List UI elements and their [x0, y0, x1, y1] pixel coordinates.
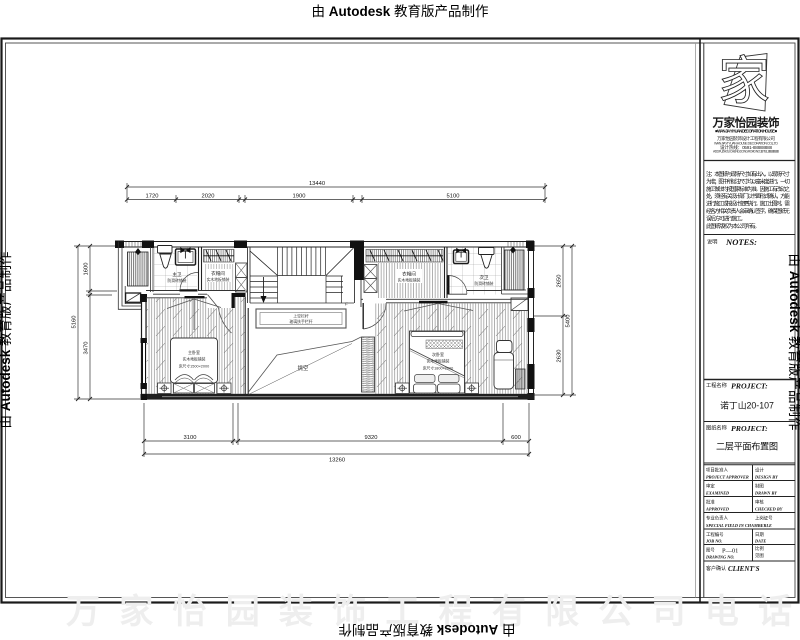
svg-text:13260: 13260 [329, 458, 345, 464]
svg-text:5100: 5100 [447, 194, 460, 200]
svg-text:9320: 9320 [365, 435, 378, 441]
svg-text:项目批准人: 项目批准人 [706, 467, 729, 474]
svg-text:5160: 5160 [72, 316, 78, 329]
svg-text:床尺寸1500×2000: 床尺寸1500×2000 [179, 364, 210, 369]
svg-text:床尺寸1800×2000: 床尺寸1800×2000 [423, 366, 454, 371]
svg-text:PROJECT APPROVER: PROJECT APPROVER [706, 475, 749, 480]
svg-text:上空栏杆: 上空栏杆 [293, 314, 309, 319]
svg-text:批准: 批准 [706, 499, 715, 506]
svg-text:注：本图纸与现场尺寸如有出入，以现场尺寸: 注：本图纸与现场尺寸如有出入，以现场尺寸 [706, 170, 790, 178]
svg-text:实木地板铺装: 实木地板铺装 [183, 357, 206, 362]
svg-text:衣帽间: 衣帽间 [211, 270, 225, 277]
svg-text:防滑砖铺装: 防滑砖铺装 [475, 281, 494, 286]
svg-text:DESIGN BY: DESIGN BY [754, 475, 778, 480]
svg-text:5400: 5400 [566, 315, 572, 328]
svg-text:3100: 3100 [184, 435, 197, 441]
svg-text:说明: 说明 [707, 238, 717, 246]
svg-text:经各方相关负责人会审确认签字，确保图纸无: 经各方相关负责人会审确认签字，确保图纸无 [706, 207, 790, 215]
svg-text:由 Autodesk 教育版产品制作: 由 Autodesk 教育版产品制作 [787, 253, 800, 430]
svg-text:F: F [345, 302, 348, 307]
svg-text:2630: 2630 [557, 350, 563, 363]
svg-text:CHECKED BY: CHECKED BY [755, 507, 783, 512]
svg-text:实木地板铺装: 实木地板铺装 [398, 278, 421, 283]
svg-text:次卧室: 次卧室 [432, 351, 444, 357]
svg-text:比例: 比例 [755, 545, 764, 552]
svg-text:设计: 设计 [755, 467, 764, 474]
svg-text:专业负责人: 专业负责人 [706, 515, 729, 522]
svg-text:DRAWING NO.: DRAWING NO. [705, 555, 735, 560]
svg-text:600: 600 [511, 435, 521, 441]
svg-text:诺丁山20-107: 诺丁山20-107 [720, 401, 774, 411]
svg-text:实木地板铺装: 实木地板铺装 [427, 359, 450, 364]
svg-text:NOTES:: NOTES: [725, 237, 757, 247]
svg-text:上岗证号: 上岗证号 [755, 515, 773, 522]
svg-text:■ WAN JIA YI YUAN DECORATION H: ■ WAN JIA YI YUAN DECORATION HOUSE ■ [715, 129, 777, 134]
svg-text:CLIENT'S: CLIENT'S [728, 565, 760, 573]
svg-text:二层平面布置图: 二层平面布置图 [716, 441, 778, 452]
svg-text:主卧室: 主卧室 [188, 349, 200, 355]
svg-text:为准；图中所标注尺寸均以毫米度进行，一切: 为准；图中所标注尺寸均以毫米度进行，一切 [706, 177, 790, 185]
svg-text:13440: 13440 [309, 181, 325, 187]
svg-text:由 Autodesk 教育版产品制作: 由 Autodesk 教育版产品制作 [338, 622, 515, 637]
svg-text:客户确认: 客户确认 [706, 565, 726, 572]
svg-text:制图: 制图 [755, 483, 764, 490]
svg-text:施工做法均按国家标准为准。因施工有改动之: 施工做法均按国家标准为准。因施工有改动之 [706, 185, 790, 193]
svg-text:2650: 2650 [557, 275, 563, 288]
svg-text:PROJECT:: PROJECT: [731, 382, 768, 391]
svg-text:主卫: 主卫 [172, 271, 182, 277]
svg-text:审定: 审定 [706, 483, 715, 490]
svg-text:玻璃扶手栏杆: 玻璃扶手栏杆 [289, 319, 312, 324]
svg-text:误后方可进行施工。: 误后方可进行施工。 [706, 214, 746, 222]
svg-text:次卫: 次卫 [479, 274, 489, 281]
svg-text:1600: 1600 [84, 263, 90, 276]
svg-text:由 Autodesk 教育版产品制作: 由 Autodesk 教育版产品制作 [311, 4, 488, 19]
svg-text:1900: 1900 [293, 194, 306, 200]
svg-text:P—01: P—01 [722, 548, 738, 555]
svg-text:进行施工或按设计变更执行。施工出图时，需: 进行施工或按设计变更执行。施工出图时，需 [706, 200, 790, 208]
svg-text:衣帽间: 衣帽间 [402, 271, 416, 278]
svg-text:处，须经有关设计部门以书面形式确认，方能: 处，须经有关设计部门以书面形式确认，方能 [706, 192, 790, 200]
svg-text:图纸名称: 图纸名称 [706, 424, 727, 432]
svg-text:万家怡园装饰: 万家怡园装饰 [712, 116, 781, 130]
svg-text:PROJECT:: PROJECT: [731, 424, 768, 433]
svg-text:家: 家 [718, 54, 770, 111]
svg-text:审核: 审核 [755, 499, 764, 506]
svg-text:此图纸版权为本公司所有。: 此图纸版权为本公司所有。 [706, 222, 760, 230]
svg-text:JOB NO.: JOB NO. [705, 539, 722, 544]
svg-text:SPECIAL FIELD IN CHAMBERLE: SPECIAL FIELD IN CHAMBERLE [706, 523, 772, 528]
svg-text:2020: 2020 [202, 194, 215, 200]
svg-text:DRAWN BY: DRAWN BY [754, 491, 777, 496]
svg-text:EXAMINED: EXAMINED [705, 491, 729, 496]
svg-text:3470: 3470 [84, 342, 90, 355]
svg-text:工程名称: 工程名称 [706, 381, 727, 389]
svg-text:挑空: 挑空 [298, 364, 309, 372]
svg-text:由 Autodesk 教育版产品制作: 由 Autodesk 教育版产品制作 [0, 251, 13, 428]
svg-text:工程编号: 工程编号 [706, 531, 724, 538]
svg-text:DATE: DATE [754, 539, 766, 544]
svg-text:ADD:FUZHOU CHENG DONG ROAD NO.: ADD:FUZHOU CHENG DONG ROAD NO.18 TEL:888… [713, 150, 779, 154]
svg-text:1720: 1720 [146, 194, 159, 200]
svg-text:APPROVED: APPROVED [705, 507, 729, 512]
svg-text:实木地板铺装: 实木地板铺装 [207, 277, 230, 282]
